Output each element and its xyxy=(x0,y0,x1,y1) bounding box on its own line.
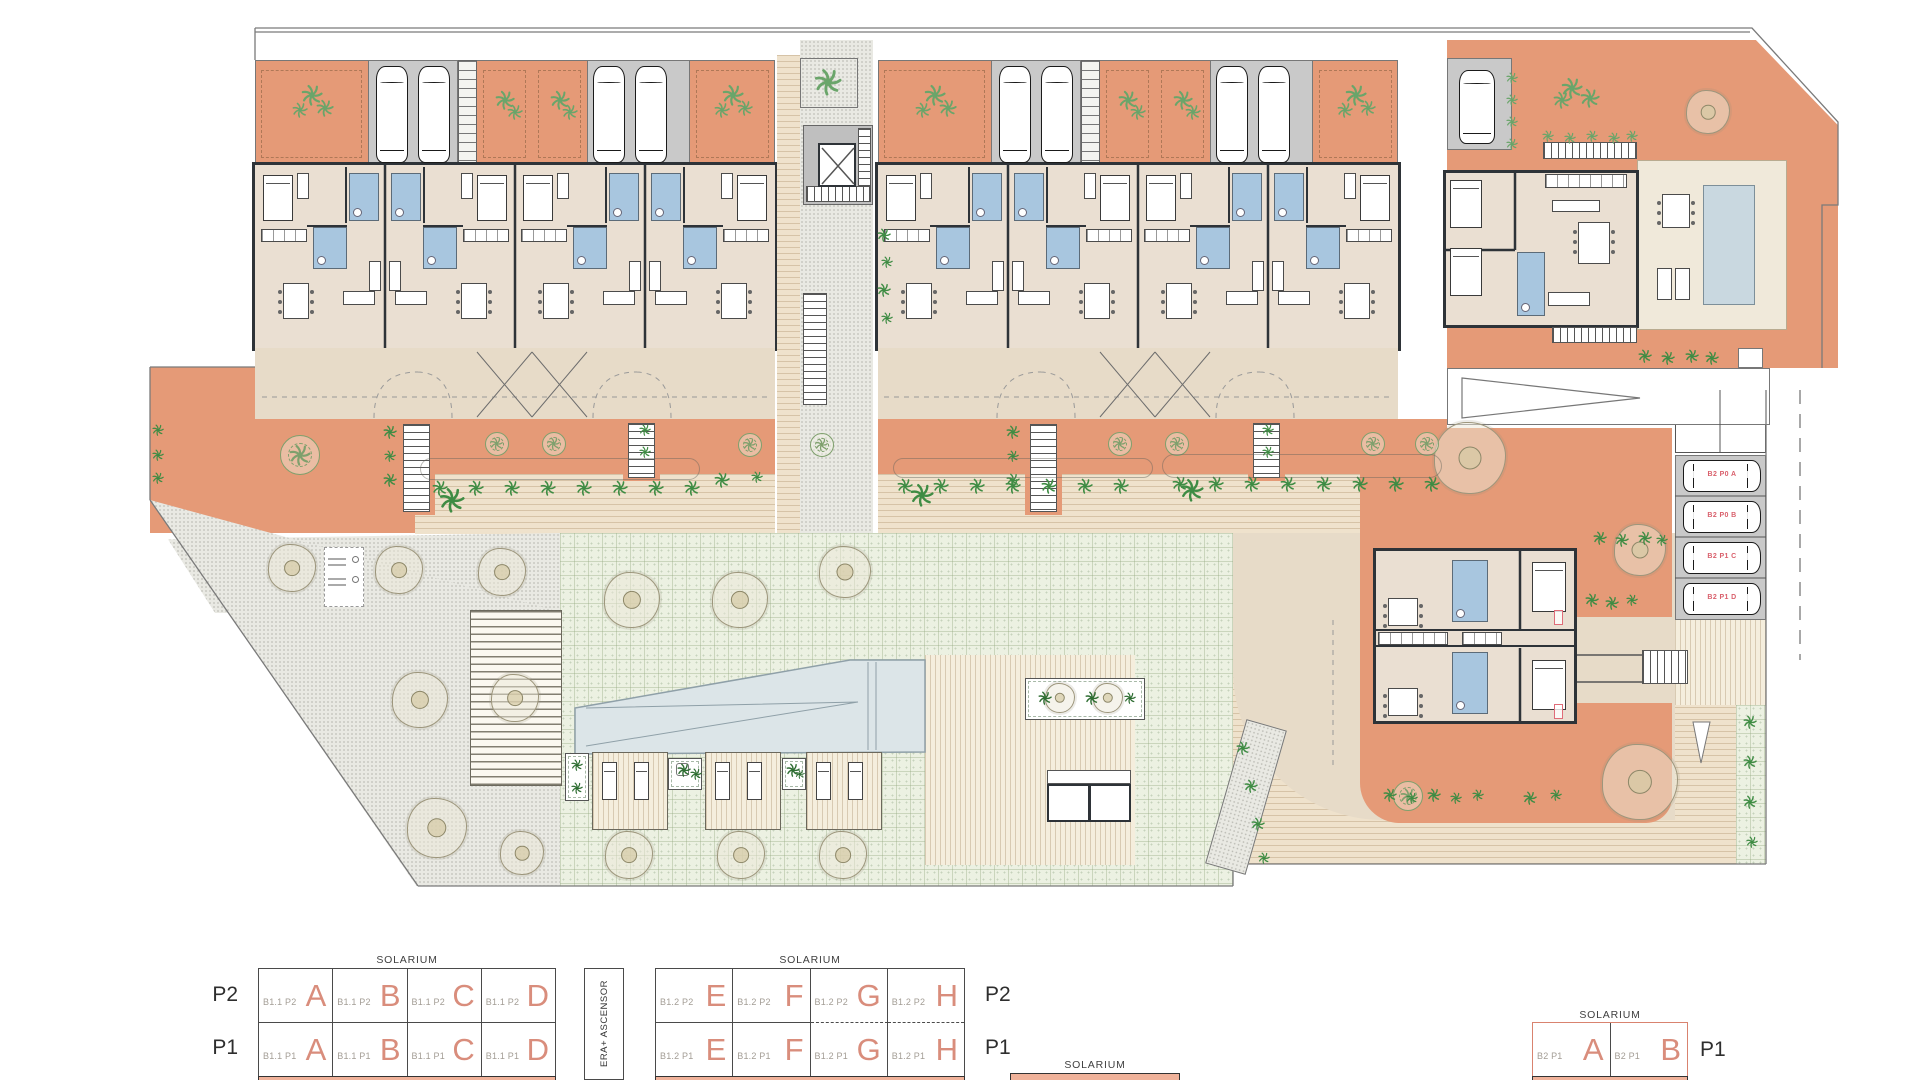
palm-icon xyxy=(383,425,397,439)
parking-space-label: B2 P1 D xyxy=(1690,594,1754,601)
palm-icon xyxy=(1113,437,1126,450)
kitch-shape xyxy=(1346,229,1392,242)
palm-icon xyxy=(1244,779,1258,793)
dotc-shape xyxy=(352,556,359,563)
tree-icon xyxy=(407,798,467,858)
palm-icon xyxy=(316,99,334,117)
furn-shape xyxy=(557,173,569,199)
unit-cell: B1.2 P1F xyxy=(733,1023,810,1076)
table6-shape xyxy=(1166,283,1192,319)
car-icon xyxy=(1258,66,1290,163)
palm-icon xyxy=(1661,351,1675,365)
unit-cell: B1.2 P2E xyxy=(656,969,733,1023)
wc xyxy=(1089,784,1131,822)
parking-space-label: B2 P0 B xyxy=(1690,512,1754,519)
palm-icon xyxy=(1424,476,1440,492)
legend-table-b11: SOLARIUM B1.1 P2A B1.1 P2B B1.1 P2C B1.1… xyxy=(258,968,556,1077)
car-icon xyxy=(418,66,450,163)
palm-icon xyxy=(1608,132,1620,144)
bathroom xyxy=(1196,227,1230,269)
legend-table-b12: SOLARIUM B1.2 P2E B1.2 P2F B1.2 P2G B1.2… xyxy=(655,968,965,1077)
unit-cell: B1.2 P1E xyxy=(656,1023,733,1076)
stair-core-label: ERA+ ASCENSOR xyxy=(599,980,610,1067)
tree-icon xyxy=(717,831,765,879)
porch xyxy=(255,348,775,419)
palm-icon xyxy=(814,68,842,96)
bathroom xyxy=(423,227,457,269)
planting-bed xyxy=(893,458,1153,478)
sunbed-shape xyxy=(602,762,617,800)
bed xyxy=(1532,660,1566,710)
dining-table xyxy=(1662,194,1690,228)
palm-icon xyxy=(881,312,893,324)
tree-icon xyxy=(604,572,660,628)
palm-icon xyxy=(1280,476,1296,492)
bathroom xyxy=(683,227,717,269)
bathroom xyxy=(1306,227,1340,269)
grayline-shape xyxy=(328,564,346,566)
bed-shape xyxy=(1360,175,1390,221)
bathroom xyxy=(1046,227,1080,269)
palm-icon xyxy=(969,478,985,494)
tree-icon xyxy=(478,548,526,596)
stairs xyxy=(1642,650,1688,684)
tree-icon xyxy=(1602,744,1678,820)
table6-shape xyxy=(1344,283,1370,319)
planting-bed xyxy=(420,458,700,480)
furn-shape xyxy=(1180,173,1192,199)
palm-icon xyxy=(383,473,397,487)
unit-tag xyxy=(1554,704,1563,719)
palm-icon xyxy=(1472,789,1484,801)
tree-icon xyxy=(605,831,653,879)
dining-table xyxy=(1578,222,1610,264)
wallline-shape xyxy=(1306,167,1308,223)
palm-icon xyxy=(1130,104,1146,120)
kitchen xyxy=(1378,632,1448,645)
palm-icon xyxy=(815,438,828,451)
palm-icon xyxy=(1360,100,1376,116)
wallline-shape xyxy=(1046,225,1086,227)
bathroom xyxy=(1452,560,1488,622)
palm-icon xyxy=(1352,476,1368,492)
sunbed xyxy=(1657,268,1672,300)
palm-icon xyxy=(1316,476,1332,492)
palm-icon xyxy=(1605,596,1619,610)
furn-shape xyxy=(461,173,473,199)
bathroom xyxy=(1014,173,1044,221)
bed xyxy=(1532,562,1566,612)
unit-cell: B1.2 P1G xyxy=(811,1023,888,1076)
palm-icon xyxy=(1615,533,1629,547)
wallline-shape xyxy=(930,225,970,227)
palm-icon xyxy=(1185,104,1201,120)
palm-icon xyxy=(292,102,308,118)
palm-icon xyxy=(1124,692,1136,704)
palm-icon xyxy=(939,99,957,117)
sunbed-shape xyxy=(816,762,831,800)
row-label-p1: P1 xyxy=(985,1036,1011,1060)
palm-icon xyxy=(648,480,664,496)
palm-icon xyxy=(152,472,164,484)
palm-icon xyxy=(1427,788,1441,802)
furn-shape xyxy=(649,261,661,291)
grayline-shape xyxy=(328,584,346,586)
sofa xyxy=(1548,292,1590,306)
palm-icon xyxy=(1420,437,1433,450)
bathroom xyxy=(349,173,379,221)
solarium-label: SOLARIUM xyxy=(1533,1009,1687,1021)
palm-icon xyxy=(1258,852,1270,864)
kitch-shape xyxy=(723,229,769,242)
furn-shape xyxy=(1552,200,1600,212)
wallline-shape xyxy=(1228,167,1230,223)
wallline-shape xyxy=(1306,225,1346,227)
ground-floor-bar xyxy=(1532,1076,1688,1080)
furn-shape xyxy=(297,173,309,199)
dotc-shape xyxy=(352,576,359,583)
palm-icon xyxy=(933,478,949,494)
palm-icon xyxy=(897,478,913,494)
table6-shape xyxy=(1084,283,1110,319)
porch xyxy=(878,348,1398,419)
car-icon xyxy=(593,66,625,163)
furn-shape xyxy=(1018,291,1050,305)
pool xyxy=(1703,185,1755,305)
palm-icon xyxy=(1593,531,1607,545)
palm-icon xyxy=(384,450,396,462)
unit-cell: B1.2 P1H xyxy=(888,1023,964,1076)
palm-icon xyxy=(684,480,700,496)
palm-icon xyxy=(1450,792,1462,804)
kitchen xyxy=(1462,632,1502,645)
wallline-shape xyxy=(423,167,425,223)
palm-icon xyxy=(547,437,560,450)
unit-cell: B1.1 P2D xyxy=(482,969,555,1023)
unit-tag xyxy=(1554,610,1563,625)
furn-shape xyxy=(1278,291,1310,305)
bathroom xyxy=(609,173,639,221)
palm-icon xyxy=(1542,130,1554,142)
palm-icon xyxy=(1506,138,1518,150)
palm-icon xyxy=(714,102,730,118)
palm-icon xyxy=(1506,72,1518,84)
palm-icon xyxy=(1337,102,1353,118)
palm-icon xyxy=(877,228,891,242)
kitch-shape xyxy=(1144,229,1190,242)
furn-shape xyxy=(1344,173,1356,199)
bed-shape xyxy=(523,175,553,221)
bed-shape xyxy=(886,175,916,221)
unit-cell: B1.1 P1A xyxy=(259,1023,333,1076)
grayline-shape xyxy=(328,578,346,580)
solarium-label: SOLARIUM xyxy=(1010,1059,1180,1071)
unit-code: B1.1 P2 xyxy=(263,997,296,1007)
row-label-p2: P2 xyxy=(985,983,1011,1007)
wallline-shape xyxy=(605,167,607,223)
palm-icon xyxy=(571,782,583,794)
furn-shape xyxy=(966,291,998,305)
palm-icon xyxy=(1743,715,1757,729)
furn-shape xyxy=(395,291,427,305)
furn-shape xyxy=(369,261,381,291)
palm-icon xyxy=(571,759,583,771)
unit-cell: B2 P1B xyxy=(1611,1023,1688,1076)
bathroom xyxy=(573,227,607,269)
palm-icon xyxy=(1580,88,1600,108)
palm-icon xyxy=(490,437,503,450)
bed-shape xyxy=(737,175,767,221)
palm-icon xyxy=(432,480,448,496)
ground-floor-bar xyxy=(655,1076,965,1080)
palm-icon xyxy=(612,480,628,496)
unit-cell: B1.1 P1B xyxy=(333,1023,407,1076)
parking-space-label: B2 P1 C xyxy=(1690,553,1754,560)
dining-table xyxy=(1388,688,1418,716)
solarium-label: SOLARIUM xyxy=(259,954,555,966)
wallline-shape xyxy=(345,167,347,223)
furn-shape xyxy=(992,261,1004,291)
palm-icon xyxy=(1506,116,1518,128)
bathroom xyxy=(1232,173,1262,221)
kitch-shape xyxy=(1086,229,1132,242)
parking-space-label: B2 P0 A xyxy=(1690,471,1754,478)
unit-cell: B1.2 P2G xyxy=(811,969,888,1023)
kitch-shape xyxy=(463,229,509,242)
unit-cell: B1.1 P2C xyxy=(408,969,482,1023)
palm-icon xyxy=(1705,351,1719,365)
stairs xyxy=(803,293,827,405)
palm-icon xyxy=(1077,478,1093,494)
floor-plan-canvas: SOLARIUM B1.1 P2A B1.1 P2B B1.1 P2C B1.1… xyxy=(0,0,1920,1080)
tree-icon xyxy=(819,546,871,598)
stair-shaft xyxy=(1081,60,1100,165)
palm-icon xyxy=(1626,594,1638,606)
white-shape xyxy=(1738,348,1763,368)
palm-icon xyxy=(468,480,484,496)
palm-icon xyxy=(1743,755,1757,769)
furn-shape xyxy=(655,291,687,305)
palm-icon xyxy=(1406,792,1418,804)
unit-cell: B1.2 P2H xyxy=(888,969,964,1023)
palm-icon xyxy=(1383,788,1397,802)
sunbed-shape xyxy=(747,762,762,800)
furn-shape xyxy=(629,261,641,291)
table6-shape xyxy=(721,283,747,319)
tree-icon xyxy=(1434,422,1506,494)
wallline-shape xyxy=(307,225,347,227)
palm-icon xyxy=(1236,741,1250,755)
ground-floor-bar xyxy=(1010,1073,1180,1080)
car-icon xyxy=(999,66,1031,163)
palm-icon xyxy=(1506,94,1518,106)
palm-icon xyxy=(540,480,556,496)
terrace xyxy=(1360,428,1672,533)
legend-table-b2: SOLARIUM B2 P1A B2 P1B xyxy=(1532,1022,1688,1077)
tree-icon xyxy=(819,831,867,879)
palm-icon xyxy=(1006,425,1020,439)
palm-icon xyxy=(1656,534,1668,546)
palm-icon xyxy=(289,444,311,466)
bathroom xyxy=(972,173,1002,221)
planting-bed xyxy=(1162,454,1442,478)
table6-shape xyxy=(461,283,487,319)
furn-shape xyxy=(1084,173,1096,199)
bed-shape xyxy=(1100,175,1130,221)
palm-icon xyxy=(1041,478,1057,494)
palm-icon xyxy=(1626,130,1638,142)
unit-cell: B1.1 P1C xyxy=(408,1023,482,1076)
bathroom xyxy=(313,227,347,269)
bathroom xyxy=(1274,173,1304,221)
palm-icon xyxy=(1170,437,1183,450)
palm-icon xyxy=(1262,424,1274,436)
palm-icon xyxy=(1208,476,1224,492)
car-icon xyxy=(1216,66,1248,163)
palm-icon xyxy=(910,483,934,507)
bathroom xyxy=(1517,252,1545,316)
palm-icon xyxy=(677,763,691,777)
palm-icon xyxy=(1251,817,1265,831)
palm-icon xyxy=(877,283,891,297)
bed-shape xyxy=(477,175,507,221)
palm-icon xyxy=(1685,349,1699,363)
wood-path xyxy=(777,55,800,533)
row-label-p1: P1 xyxy=(188,1036,238,1060)
palm-icon xyxy=(714,472,730,488)
furn-shape xyxy=(1252,261,1264,291)
palm-icon xyxy=(504,480,520,496)
car-icon xyxy=(1041,66,1073,163)
furn-shape xyxy=(389,261,401,291)
tree-icon xyxy=(491,674,539,722)
row-label-p1: P1 xyxy=(1700,1038,1726,1062)
unit-letter: A xyxy=(306,978,327,1014)
palm-icon xyxy=(1586,130,1598,142)
stair-shaft xyxy=(458,60,477,165)
solarium-label: SOLARIUM xyxy=(656,954,964,966)
unit-cell: B1.1 P2A xyxy=(259,969,333,1023)
palm-icon xyxy=(1172,476,1188,492)
furn-shape xyxy=(1012,261,1024,291)
palm-icon xyxy=(1005,478,1021,494)
palm-icon xyxy=(743,438,756,451)
palm-icon xyxy=(690,768,702,780)
palm-icon xyxy=(1244,476,1260,492)
palm-icon xyxy=(881,256,893,268)
palm-icon xyxy=(1564,132,1576,144)
table6-shape xyxy=(543,283,569,319)
furn-shape xyxy=(1272,261,1284,291)
stairs xyxy=(1552,327,1637,343)
unit-cell: B1.2 P2F xyxy=(733,969,810,1023)
wallline-shape xyxy=(1190,225,1230,227)
car-icon xyxy=(376,66,408,163)
palm-icon xyxy=(562,104,578,120)
sunbed-shape xyxy=(715,762,730,800)
palm-icon xyxy=(152,449,164,461)
tree-icon xyxy=(500,831,544,875)
tree-icon xyxy=(1686,90,1730,134)
tree-icon xyxy=(712,572,768,628)
palm-icon xyxy=(507,104,523,120)
furn-shape xyxy=(721,173,733,199)
tree-icon xyxy=(375,546,423,594)
kitch-shape xyxy=(521,229,567,242)
bed xyxy=(1450,248,1482,296)
shower-stalls xyxy=(1047,770,1131,784)
table6-shape xyxy=(906,283,932,319)
palm-icon xyxy=(795,769,805,779)
wallline-shape xyxy=(683,225,723,227)
palm-icon xyxy=(1523,791,1537,805)
ground-floor-bar xyxy=(258,1076,556,1080)
bed-shape xyxy=(1146,175,1176,221)
car-icon xyxy=(635,66,667,163)
sunbed-shape xyxy=(634,762,649,800)
wallline-shape xyxy=(423,225,463,227)
palm-icon xyxy=(1638,531,1652,545)
palm-icon xyxy=(751,471,763,483)
sunbed xyxy=(1675,268,1690,300)
deck xyxy=(1675,620,1766,705)
unit-cell: B1.1 P1D xyxy=(482,1023,555,1076)
ramp-band xyxy=(1447,368,1770,425)
palm-icon xyxy=(1038,691,1052,705)
palm-icon xyxy=(639,424,651,436)
stairs xyxy=(1543,142,1637,159)
palm-icon xyxy=(915,102,931,118)
elevator xyxy=(818,143,856,187)
grayline-shape xyxy=(328,558,346,560)
palm-icon xyxy=(1743,795,1757,809)
bathroom xyxy=(936,227,970,269)
palm-icon xyxy=(1553,91,1571,109)
bathroom xyxy=(391,173,421,221)
furn-shape xyxy=(1226,291,1258,305)
palm-icon xyxy=(1550,789,1562,801)
tree-icon xyxy=(392,672,448,728)
furn-shape xyxy=(603,291,635,305)
wallline-shape xyxy=(1046,167,1048,223)
palm-icon xyxy=(1388,476,1404,492)
palm-icon xyxy=(1113,478,1129,494)
palm-icon xyxy=(737,100,753,116)
stair-core-box: ERA+ ASCENSOR xyxy=(584,968,624,1080)
table6-shape xyxy=(283,283,309,319)
wallline-shape xyxy=(683,167,685,223)
stairs xyxy=(806,186,870,202)
sunbed-shape xyxy=(848,762,863,800)
palm-icon xyxy=(152,424,164,436)
wc xyxy=(1047,784,1090,822)
palm-icon xyxy=(639,446,651,458)
wallline-shape xyxy=(968,167,970,223)
bathroom xyxy=(651,173,681,221)
palm-icon xyxy=(1085,691,1099,705)
car-icon xyxy=(1459,70,1495,144)
palm-icon xyxy=(1746,836,1758,848)
wallline-shape xyxy=(567,225,607,227)
row-label-p2: P2 xyxy=(188,983,238,1007)
palm-icon xyxy=(1366,437,1379,450)
bed xyxy=(1450,180,1482,228)
kitch-shape xyxy=(261,229,307,242)
unit-cell: B2 P1A xyxy=(1533,1023,1611,1076)
unit-cell: B1.1 P2B xyxy=(333,969,407,1023)
dining-table xyxy=(1388,598,1418,626)
palm-icon xyxy=(1585,593,1599,607)
